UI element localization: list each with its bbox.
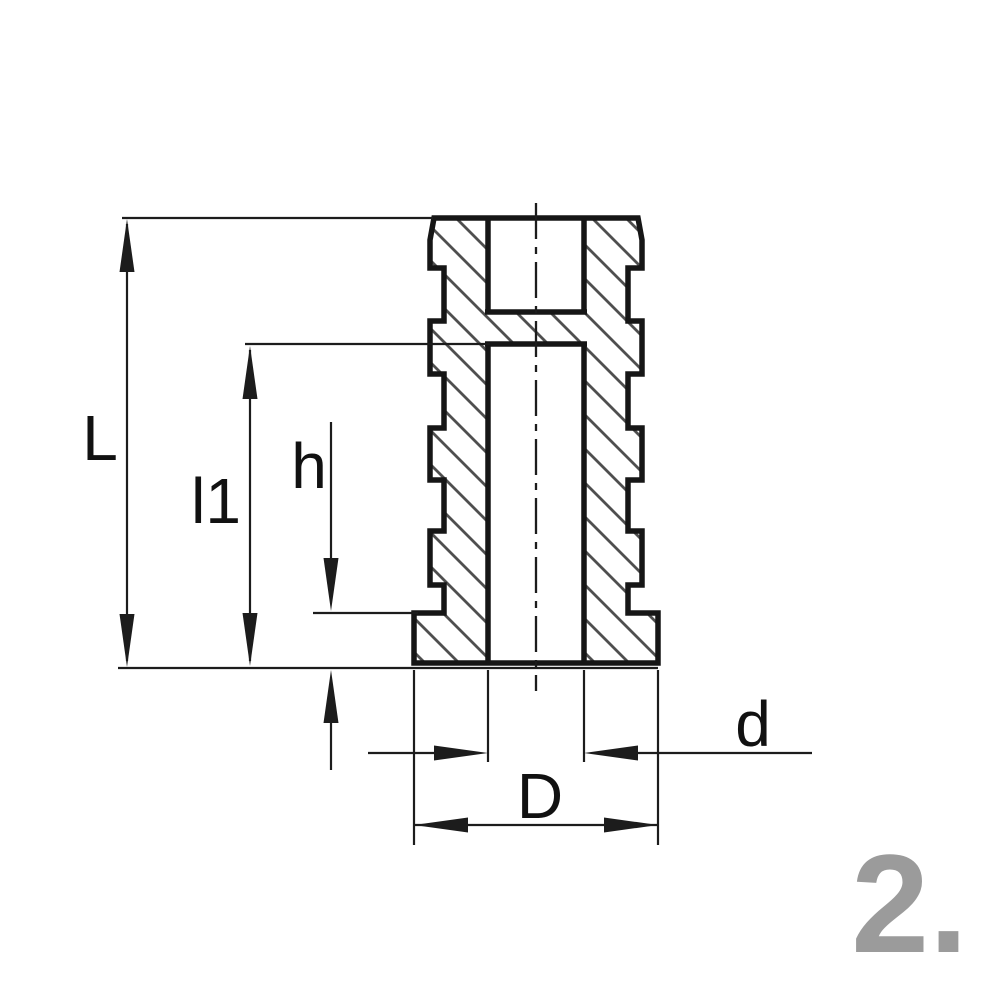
dim-l1-arrow-down xyxy=(243,613,258,666)
dim-L-arrow-down xyxy=(120,614,135,667)
dim-h-arrow-down xyxy=(324,558,339,611)
dim-D-arrow-left xyxy=(414,818,468,833)
dim-label-l1: l1 xyxy=(191,465,241,537)
dim-label-d: d xyxy=(735,688,771,760)
dim-d-arrow-left xyxy=(584,746,638,761)
dimension-h: h xyxy=(291,422,418,770)
dimension-d: d xyxy=(368,670,812,762)
step-number: 2. xyxy=(851,825,968,982)
dim-D-arrow-right xyxy=(604,818,658,833)
insert-section-drawing: L l1 h d xyxy=(0,0,1000,1000)
dim-l1-arrow-up xyxy=(243,346,258,399)
dim-d-arrow-right xyxy=(434,746,488,761)
drawing-canvas: L l1 h d xyxy=(0,0,1000,1000)
dim-label-h: h xyxy=(291,430,327,502)
dim-L-arrow-up xyxy=(120,219,135,272)
dim-label-D: D xyxy=(517,760,563,832)
dim-label-L: L xyxy=(82,402,118,474)
dim-h-arrow-up xyxy=(324,670,339,723)
